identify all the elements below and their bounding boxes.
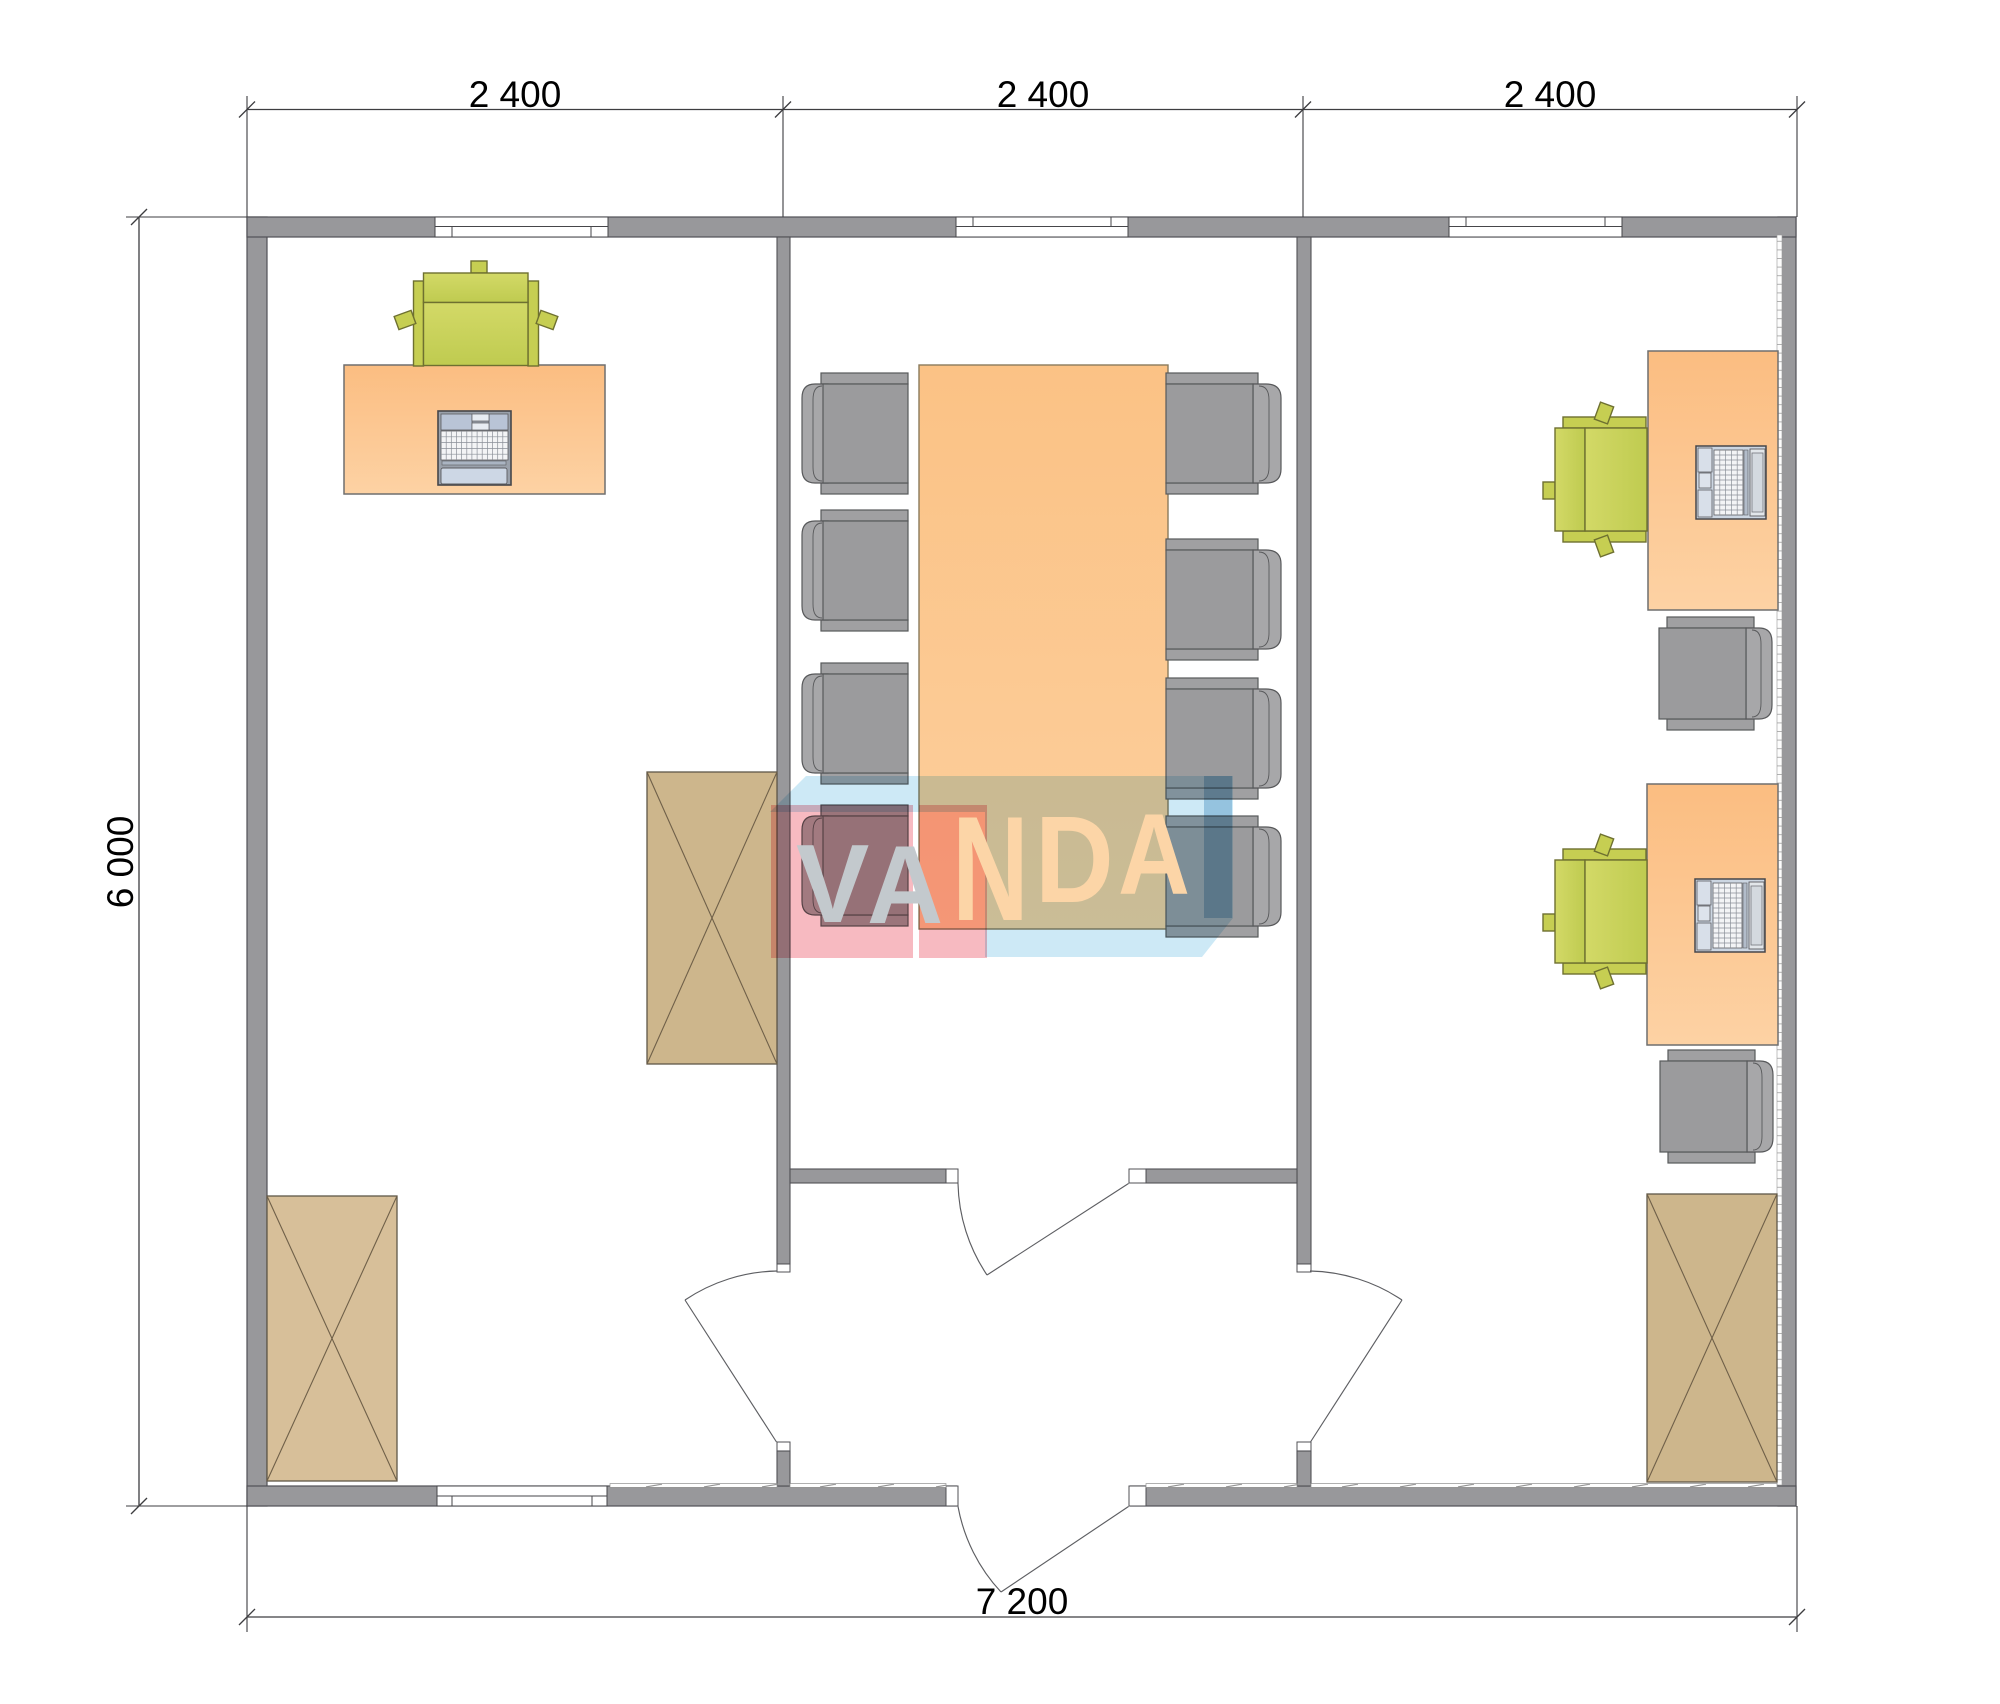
- svg-text:D: D: [1035, 791, 1114, 929]
- svg-text:V: V: [796, 823, 869, 947]
- svg-text:2 400: 2 400: [1504, 74, 1597, 115]
- svg-text:6 000: 6 000: [100, 816, 141, 909]
- svg-text:2 400: 2 400: [997, 74, 1090, 115]
- svg-text:N: N: [952, 786, 1029, 952]
- svg-text:2 400: 2 400: [469, 74, 562, 115]
- svg-text:A: A: [867, 823, 943, 947]
- svg-text:A: A: [1118, 790, 1190, 918]
- svg-text:7 200: 7 200: [976, 1581, 1069, 1622]
